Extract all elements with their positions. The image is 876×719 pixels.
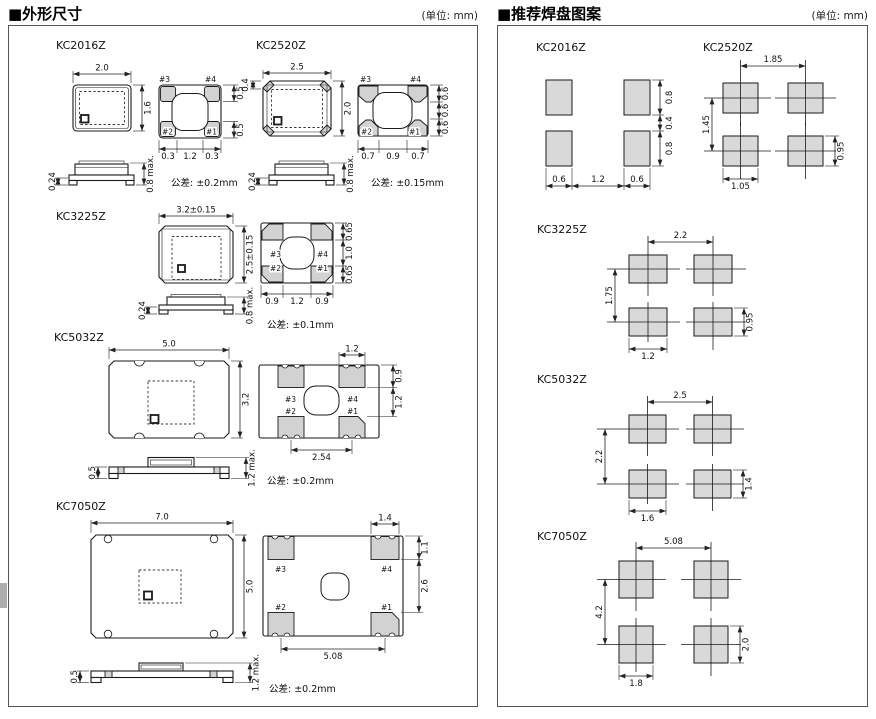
dim-label: 0.24 — [138, 301, 148, 320]
kc7050z-tolerance: 公差: ±0.2mm — [269, 683, 336, 695]
land-pattern-section: ■推荐焊盘图案 (单位: mm) KC2016Z 0.8 0.4 0.8 — [497, 3, 868, 707]
pad2-label: #2 — [285, 407, 296, 416]
dim-label: 5.08 — [664, 537, 683, 547]
dim-label: 1.4 — [745, 477, 755, 491]
dim-label: 0.7 — [411, 152, 425, 162]
kc3225z-outline-title: KC3225Z — [56, 210, 106, 223]
pad4-label: #4 — [410, 75, 421, 84]
kc5032z-side-view: 0.5 1.2 max. — [88, 449, 258, 486]
dim-label: 2.2 — [595, 450, 605, 464]
dim-label: 0.6 — [441, 104, 451, 118]
kc3225z-land-pattern: KC3225Z 2.2 1.75 1.2 0.95 — [537, 223, 756, 362]
kc5032z-tolerance: 公差: ±0.2mm — [267, 475, 334, 487]
dim-label: 2.5 — [673, 391, 687, 401]
kc2016z-tolerance: 公差: ±0.2mm — [171, 177, 238, 189]
kc2016z-outline-drawing: KC2016Z 2.0 1.6 — [48, 39, 246, 193]
dim-label: 0.5 — [88, 466, 98, 480]
kc5032z-outline-drawing: KC5032Z 5.0 3.2 — [54, 331, 405, 487]
land-pattern-drawings-svg: KC2016Z 0.8 0.4 0.8 0.6 1.2 0.6 — [498, 26, 867, 706]
pad4-label: #4 — [317, 250, 328, 259]
kc7050z-top-view: 7.0 5.0 — [91, 513, 256, 639]
dim-label: 0.7 — [361, 152, 375, 162]
outline-section: ■外形尺寸 (单位: mm) KC2016Z 2.0 — [8, 3, 478, 707]
kc2520z-land-pattern: KC2520Z 1.85 1.45 1.05 0.95 — [702, 41, 847, 192]
dim-label: 0.24 — [48, 172, 58, 191]
land-pattern-section-title: ■推荐焊盘图案 — [497, 3, 601, 24]
dim-label: 0.95 — [746, 313, 756, 332]
dim-label: 1.2 — [290, 297, 304, 307]
dim-label: 2.5 — [290, 63, 304, 73]
pad1-label: #1 — [409, 128, 420, 137]
dim-label: 1.8 — [629, 679, 643, 689]
dim-label: 2.0 — [344, 102, 354, 116]
dim-label: 5.08 — [324, 652, 343, 662]
dim-label: 4.2 — [595, 605, 605, 619]
pad2-label: #2 — [275, 603, 286, 612]
dim-label: 0.24 — [248, 172, 258, 191]
kc3225z-bottom-view: #3 #4 #2 #1 0.65 1.0 0.65 0.9 1.2 0.9 — [261, 222, 355, 307]
kc7050z-land-title: KC7050Z — [537, 530, 587, 543]
dim-label: 2.54 — [312, 453, 331, 463]
pad2-label: #2 — [361, 128, 372, 137]
outline-header: ■外形尺寸 (单位: mm) — [8, 3, 478, 25]
dim-label: 5.0 — [246, 580, 256, 594]
dim-label: 1.75 — [605, 286, 615, 305]
dim-label: 2.2 — [674, 231, 688, 241]
kc2016z-land-title: KC2016Z — [536, 41, 586, 54]
pad2-label: #2 — [270, 264, 281, 273]
kc5032z-outline-title: KC5032Z — [54, 331, 104, 344]
kc5032z-bottom-view: #3 #4 #2 #1 1.2 0.9 1.2 2.54 — [259, 345, 405, 464]
kc7050z-outline-drawing: KC7050Z 7.0 5.0 — [56, 500, 431, 695]
dim-label: 2.0 — [742, 638, 752, 652]
dim-label: 1.6 — [144, 101, 154, 115]
pad1-label: #1 — [347, 407, 358, 416]
dim-label: 1.2 max. — [248, 449, 258, 486]
dim-label: 0.5 — [70, 670, 80, 684]
pad3-label: #3 — [270, 250, 281, 259]
kc3225z-side-view: 0.24 0.8 max. — [138, 287, 256, 324]
pad3-label: #3 — [275, 565, 286, 574]
dim-label: 0.6 — [552, 175, 566, 185]
kc2016z-land-pattern: KC2016Z 0.8 0.4 0.8 0.6 1.2 0.6 — [536, 41, 675, 190]
dim-label: 0.9 — [395, 369, 405, 383]
outline-unit-label: (单位: mm) — [421, 8, 478, 23]
land-pattern-header: ■推荐焊盘图案 (单位: mm) — [497, 3, 868, 25]
dim-label: 0.65 — [345, 222, 355, 241]
dim-label: 0.9 — [265, 297, 279, 307]
pad1-label: #1 — [317, 264, 328, 273]
dim-label: 0.8 max. — [346, 155, 356, 192]
pad4-label: #4 — [381, 565, 392, 574]
pad4-label: #4 — [347, 395, 358, 404]
kc5032z-land-pattern: KC5032Z 2.5 2.2 1.6 1.4 — [537, 373, 755, 524]
outline-section-title: ■外形尺寸 — [8, 3, 82, 24]
kc3225z-tolerance: 公差: ±0.1mm — [267, 319, 334, 331]
kc2016z-bottom-view: #3 #4 #2 #1 0.5 0.5 0.3 1.2 0.3 — [159, 75, 246, 162]
kc3225z-top-view: 3.2±0.15 2.5±0.15 — [159, 206, 256, 284]
land-pattern-unit-label: (单位: mm) — [811, 8, 868, 23]
kc3225z-outline-drawing: KC3225Z 3.2±0.15 2.5±0.15 — [56, 206, 355, 332]
dim-label: 1.45 — [702, 115, 712, 134]
dim-label: 0.4 — [241, 78, 251, 92]
kc2520z-land-title: KC2520Z — [703, 41, 753, 54]
kc7050z-outline-title: KC7050Z — [56, 500, 106, 513]
dim-label: 1.2 — [591, 175, 605, 185]
dim-label: 0.6 — [441, 121, 451, 135]
page-edge-artifact — [0, 583, 7, 608]
dim-label: 3.2±0.15 — [176, 206, 216, 216]
dim-label: 3.2 — [242, 393, 252, 407]
dim-label: 1.0 — [345, 246, 355, 260]
dim-label: 1.2 max. — [252, 654, 262, 691]
kc7050z-bottom-view: #3 #4 #2 #1 1.4 1.1 2.6 5.08 — [263, 514, 431, 663]
pad2-label: #2 — [162, 128, 173, 137]
dim-label: 2.6 — [421, 579, 431, 593]
dim-label: 1.1 — [421, 541, 431, 555]
kc2016z-side-view: 0.24 0.8 max. — [48, 155, 156, 192]
dim-label: 0.3 — [161, 152, 175, 162]
dim-label: 0.95 — [837, 142, 847, 161]
kc2016z-outline-title: KC2016Z — [56, 39, 106, 52]
dim-label: 1.2 — [641, 352, 655, 362]
kc7050z-land-pattern: KC7050Z 5.08 4.2 1.8 2.0 — [537, 530, 752, 689]
kc3225z-land-title: KC3225Z — [537, 223, 587, 236]
outline-panel: KC2016Z 2.0 1.6 — [8, 25, 478, 707]
dim-label: 0.3 — [205, 152, 219, 162]
kc5032z-top-view: 5.0 3.2 — [109, 340, 252, 439]
dim-label: 0.9 — [315, 297, 329, 307]
kc2520z-outline-drawing: KC2520Z 2.5 2.0 — [241, 39, 451, 193]
datasheet-page: ■外形尺寸 (单位: mm) KC2016Z 2.0 — [0, 0, 876, 719]
pad1-label: #1 — [206, 128, 217, 137]
kc2520z-outline-title: KC2520Z — [256, 39, 306, 52]
dim-label: 1.4 — [378, 514, 392, 524]
dim-label: 1.05 — [731, 182, 750, 192]
dim-label: 2.0 — [95, 64, 109, 74]
kc2520z-side-view: 0.24 0.8 max. — [248, 155, 356, 192]
dim-label: 0.8 max. — [146, 155, 156, 192]
dim-label: 0.5 — [236, 123, 246, 137]
dim-label: 1.2 — [183, 152, 197, 162]
pad1-label: #1 — [381, 603, 392, 612]
pad4-label: #4 — [205, 75, 216, 84]
dim-label: 0.8 — [665, 91, 675, 105]
kc2520z-top-view: 2.5 2.0 0.4 — [241, 63, 354, 137]
dim-label: 0.4 — [665, 116, 675, 130]
dim-label: 0.8 — [665, 142, 675, 156]
dim-label: 1.85 — [764, 55, 783, 65]
kc2520z-bottom-view: #3 #4 #2 #1 0.6 0.6 0.6 0.7 0.9 0.7 — [358, 75, 451, 162]
kc5032z-land-title: KC5032Z — [537, 373, 587, 386]
kc2016z-top-view: 2.0 1.6 — [73, 64, 154, 132]
dim-label: 0.6 — [630, 175, 644, 185]
dim-label: 0.6 — [441, 87, 451, 101]
dim-label: 0.9 — [386, 152, 400, 162]
outline-drawings-svg: KC2016Z 2.0 1.6 — [9, 26, 477, 706]
dim-label: 0.65 — [345, 265, 355, 284]
dim-label: 1.6 — [641, 514, 655, 524]
kc2520z-tolerance: 公差: ±0.15mm — [371, 177, 444, 189]
pad3-label: #3 — [159, 75, 170, 84]
pad3-label: #3 — [360, 75, 371, 84]
dim-label: 1.2 — [345, 345, 359, 355]
kc7050z-side-view: 0.5 1.2 max. — [70, 654, 262, 691]
dim-label: 5.0 — [162, 340, 176, 350]
dim-label: 7.0 — [155, 513, 169, 523]
dim-label: 2.5±0.15 — [246, 235, 256, 275]
land-pattern-panel: KC2016Z 0.8 0.4 0.8 0.6 1.2 0.6 — [497, 25, 868, 707]
dim-label: 1.2 — [395, 395, 405, 409]
dim-label: 0.8 max. — [246, 287, 256, 324]
pad3-label: #3 — [285, 395, 296, 404]
